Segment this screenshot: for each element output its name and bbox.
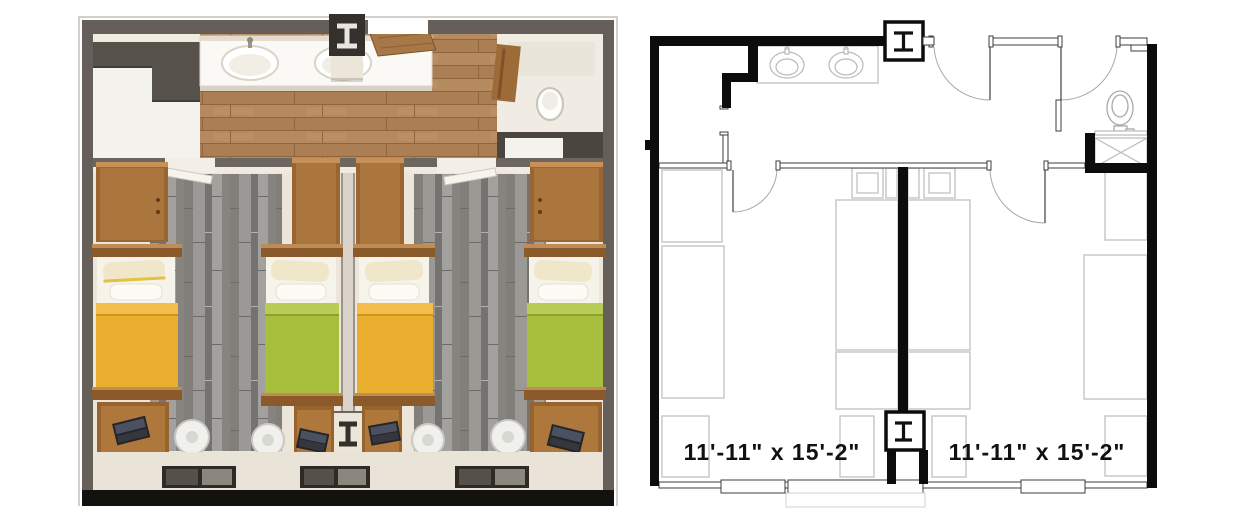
plan-window-left bbox=[721, 480, 785, 493]
plan-bed-left-2 bbox=[836, 200, 898, 350]
plan-left-wall bbox=[650, 36, 659, 486]
bedroom-right-door-swing bbox=[990, 168, 1045, 223]
foot-shelf bbox=[524, 390, 606, 400]
plan-bed-left-1 bbox=[662, 246, 724, 398]
bed-green-right bbox=[524, 244, 606, 400]
bed-yellow-left bbox=[92, 244, 182, 400]
plan-window-center bbox=[788, 480, 923, 493]
plan-wardrobe-left bbox=[662, 170, 722, 242]
wardrobe-right-room bbox=[530, 162, 603, 242]
plan-window-right bbox=[1021, 480, 1085, 493]
pillow bbox=[365, 259, 424, 282]
steel-column-top bbox=[329, 14, 365, 82]
plan-wardrobe-right bbox=[1105, 172, 1147, 240]
bedroom-left-door-swing bbox=[733, 168, 777, 212]
headboard-shelf bbox=[353, 248, 435, 257]
pillow bbox=[534, 259, 593, 282]
plan-column-top bbox=[885, 22, 934, 60]
carpet-right-room bbox=[414, 174, 546, 451]
plan-dresser-left bbox=[836, 352, 898, 409]
plan-window-sill bbox=[786, 493, 925, 507]
plan-bed-right-1 bbox=[908, 200, 970, 350]
plan-top-wall bbox=[650, 36, 888, 46]
blanket bbox=[527, 303, 603, 391]
foot-shelf bbox=[261, 396, 343, 406]
wardrobe-center-right bbox=[356, 158, 404, 250]
base-black-bar bbox=[82, 490, 614, 506]
plan-right-wall bbox=[1147, 44, 1157, 488]
blanket bbox=[357, 303, 433, 395]
plan-vanity bbox=[757, 46, 878, 83]
room-left-dimensions-label: 11'-11" x 15'-2" bbox=[684, 439, 861, 465]
plan-center-wall bbox=[898, 167, 908, 412]
plan-shower bbox=[1095, 131, 1147, 167]
center-wall bbox=[341, 173, 355, 414]
plan-toilet bbox=[1107, 91, 1134, 133]
render-3d-view bbox=[75, 12, 625, 506]
wardrobe-center-left bbox=[292, 158, 340, 250]
headboard-shelf bbox=[261, 248, 343, 257]
blanket bbox=[96, 303, 178, 391]
headboard-shelf bbox=[92, 248, 182, 257]
foot-shelf bbox=[353, 396, 435, 406]
wardrobe-left-room bbox=[96, 162, 168, 242]
entry-door-swing bbox=[934, 44, 990, 100]
blanket bbox=[265, 303, 339, 395]
headboard-shelf bbox=[524, 248, 606, 257]
plan-column-bottom bbox=[886, 412, 924, 450]
plan-dresser-right bbox=[908, 352, 970, 409]
toilet-room bbox=[491, 34, 603, 132]
pillow bbox=[271, 259, 330, 282]
dorm-suite-graphic: 11'-11" x 15'-2" 11'-11" x 15'-2" bbox=[0, 0, 1240, 527]
bed-green-left-room bbox=[261, 244, 343, 406]
bed-yellow-right-room bbox=[353, 244, 435, 406]
plan-bed-right-2 bbox=[1084, 255, 1147, 399]
room-right-dimensions-label: 11'-11" x 15'-2" bbox=[949, 439, 1126, 465]
shower-room-left bbox=[93, 42, 200, 166]
render-bottom-wall bbox=[82, 452, 614, 506]
floor-plan-view: 11'-11" x 15'-2" 11'-11" x 15'-2" bbox=[645, 18, 1165, 518]
foot-shelf bbox=[92, 390, 182, 400]
toilet-door-swing bbox=[1061, 44, 1117, 100]
